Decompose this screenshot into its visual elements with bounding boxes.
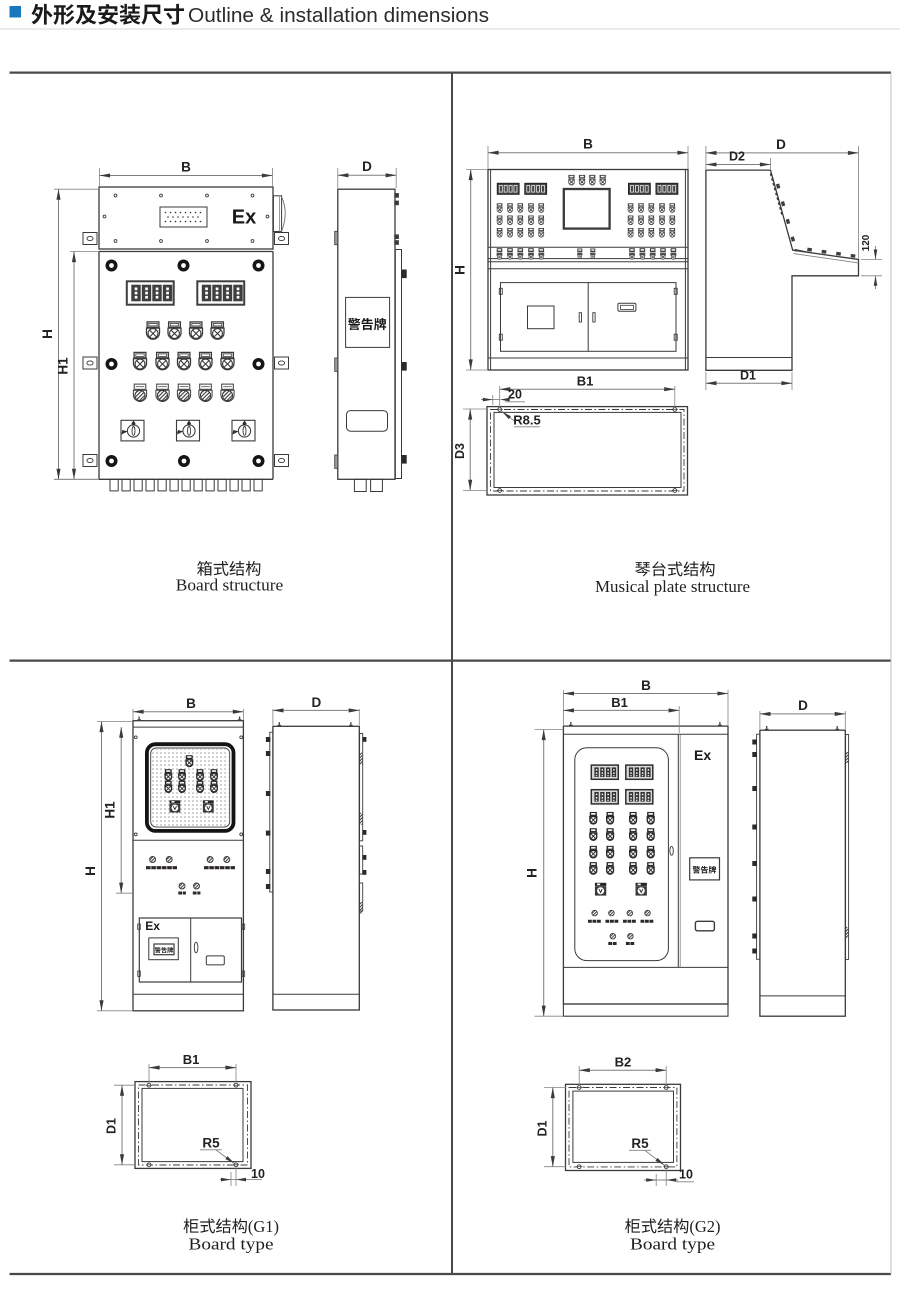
svg-text:H: H bbox=[453, 265, 468, 275]
svg-text:Ex: Ex bbox=[694, 747, 711, 763]
svg-text:20: 20 bbox=[508, 387, 522, 401]
svg-text:R5: R5 bbox=[202, 1136, 220, 1151]
svg-text:Board structure: Board structure bbox=[176, 576, 284, 595]
svg-text:D1: D1 bbox=[740, 369, 756, 383]
svg-text:D: D bbox=[312, 695, 322, 710]
svg-text:B1: B1 bbox=[611, 695, 628, 710]
svg-text:Ex: Ex bbox=[145, 919, 160, 933]
svg-text:Outline & installation dimensi: Outline & installation dimensions bbox=[188, 4, 489, 27]
svg-text:10: 10 bbox=[679, 1167, 693, 1181]
svg-text:H: H bbox=[525, 868, 540, 878]
svg-text:D: D bbox=[362, 159, 372, 174]
svg-text:H: H bbox=[83, 866, 98, 876]
svg-text:Musical plate structure: Musical plate structure bbox=[595, 577, 750, 596]
svg-text:B1: B1 bbox=[577, 373, 594, 388]
svg-text:B: B bbox=[181, 160, 191, 175]
svg-text:Board type: Board type bbox=[189, 1235, 274, 1254]
svg-text:Board type: Board type bbox=[630, 1235, 715, 1254]
svg-text:120: 120 bbox=[861, 234, 872, 251]
svg-text:(G1): (G1) bbox=[248, 1217, 279, 1236]
svg-text:(G2): (G2) bbox=[689, 1217, 720, 1236]
svg-text:D1: D1 bbox=[535, 1120, 549, 1136]
svg-text:B: B bbox=[641, 678, 651, 693]
svg-text:B1: B1 bbox=[183, 1052, 200, 1067]
svg-text:D1: D1 bbox=[105, 1118, 119, 1134]
svg-text:H: H bbox=[40, 329, 55, 339]
svg-text:B: B bbox=[186, 696, 196, 711]
svg-text:R5: R5 bbox=[631, 1136, 649, 1151]
svg-text:B2: B2 bbox=[615, 1054, 632, 1069]
svg-text:D3: D3 bbox=[453, 443, 467, 459]
svg-text:D: D bbox=[798, 698, 808, 713]
svg-text:Ex: Ex bbox=[232, 207, 256, 229]
svg-text:D: D bbox=[776, 137, 786, 152]
svg-text:R8.5: R8.5 bbox=[513, 413, 540, 428]
svg-text:10: 10 bbox=[251, 1167, 265, 1181]
svg-text:H1: H1 bbox=[56, 357, 71, 375]
svg-text:B: B bbox=[583, 137, 593, 152]
svg-text:D2: D2 bbox=[729, 150, 745, 164]
svg-text:H1: H1 bbox=[103, 801, 118, 819]
